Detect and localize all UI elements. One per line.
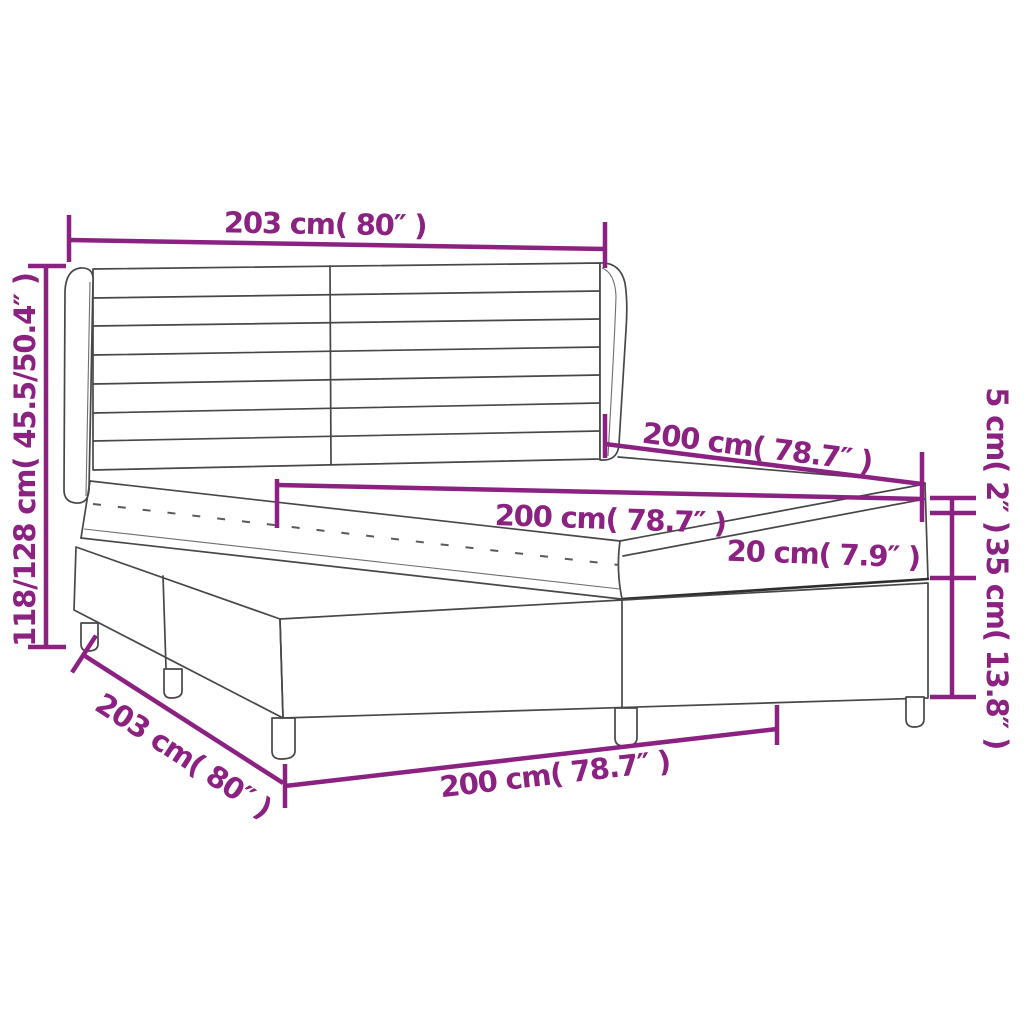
base-left-seam — [163, 576, 166, 668]
headboard-stripe — [93, 347, 600, 355]
bed-leg — [164, 669, 182, 698]
headboard-stripe — [93, 291, 600, 298]
diagram-canvas: 203 cm( 80″ ) 118/128 cm( 45.5/50.4″ ) 2… — [0, 0, 1024, 1024]
dim-label-overall-height: 118/128 cm( 45.5/50.4″ ) — [8, 273, 42, 647]
mattress-piping — [84, 529, 620, 589]
headboard-stripe — [93, 319, 600, 326]
dim-label-mattress-height: 20 cm( 7.9″ ) — [726, 534, 920, 575]
bed-leg — [272, 718, 295, 759]
mattress-corner-curve — [618, 541, 622, 599]
base-front-face — [280, 583, 928, 718]
mattress-right-cap — [925, 484, 928, 579]
box-spring-base — [74, 547, 928, 759]
bed-dimension-diagram: 203 cm( 80″ ) 118/128 cm( 45.5/50.4″ ) 2… — [0, 0, 1024, 1024]
mattress-bottom-left-edge — [81, 538, 621, 599]
headboard-left-wing — [64, 268, 93, 503]
headboard-stripe — [93, 375, 600, 384]
dim-line-headboard-width — [69, 240, 605, 249]
dimension-labels: 203 cm( 80″ ) 118/128 cm( 45.5/50.4″ ) 2… — [8, 205, 1014, 825]
dim-label-topper-height: 5 cm( 2″ ) — [980, 387, 1014, 533]
bed-leg — [906, 697, 924, 727]
mattress-bottom-right-edge — [622, 579, 928, 599]
headboard-stripe — [93, 431, 600, 441]
headboard-stripe — [93, 403, 600, 413]
headboard-center-seam — [330, 266, 331, 465]
bed-leg — [615, 708, 637, 746]
dim-label-base-height: 35 cm( 13.8″ ) — [980, 537, 1014, 749]
headboard — [64, 263, 627, 503]
dim-line-mattress-width — [277, 485, 922, 499]
dim-label-mattress-width: 200 cm( 78.7″ ) — [494, 498, 726, 540]
dim-label-base-width: 203 cm( 80″ ) — [89, 686, 277, 825]
dim-label-headboard-width: 203 cm( 80″ ) — [224, 205, 427, 242]
